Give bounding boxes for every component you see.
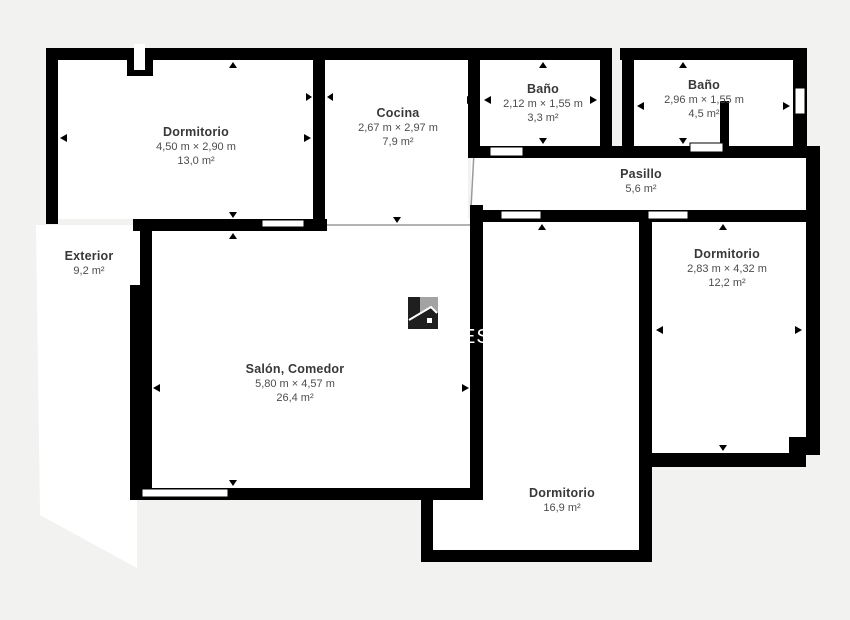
- room-floor-dormitorio-tl: [58, 60, 313, 219]
- wall-dorm-right-step: [789, 437, 806, 455]
- wall-bano2-left: [622, 48, 634, 158]
- wall-salon-right: [470, 205, 483, 500]
- wall-dorm-cocina: [313, 60, 325, 225]
- door-bano-2: [690, 143, 723, 152]
- wall-salon-left-upper: [140, 219, 152, 287]
- wall-left-outer: [46, 48, 58, 224]
- door-pasillo-dorm-right: [648, 211, 688, 219]
- room-floor-salon: [140, 219, 483, 500]
- wall-dorms-divider: [639, 210, 652, 562]
- watermark-logo: [408, 297, 438, 329]
- room-floor-bano-2: [634, 60, 793, 146]
- wall-right-outer: [806, 146, 820, 455]
- door-pasillo-dorm-bottom: [501, 211, 541, 219]
- wall-top-main: [46, 48, 612, 60]
- wall-dorm-bottom-left-ext: [421, 488, 433, 562]
- wall-cocina-bano1: [468, 60, 480, 158]
- wall-top-bano2: [620, 48, 807, 60]
- floor-plan-drawing: [0, 0, 850, 620]
- window-bano-2: [795, 88, 805, 114]
- room-floor-bano-1: [480, 60, 600, 146]
- room-floor-dormitorio-right: [652, 222, 806, 453]
- window-dorm-tl: [262, 220, 304, 227]
- wall-dorm-bottom-bottom: [421, 550, 652, 562]
- window-salon: [142, 489, 228, 497]
- wall-salon-left-lower: [130, 285, 152, 500]
- wall-bano1-right: [600, 48, 612, 158]
- room-floor-pasillo: [471, 158, 806, 210]
- floor-plan: ES Dormitorio 4,50 m × 2,90 m 13,0 m² Co…: [0, 0, 850, 620]
- wall-notch-slot: [134, 44, 145, 70]
- room-floor-exterior: [36, 225, 141, 568]
- room-floor-cocina: [325, 60, 468, 225]
- door-bano-1: [490, 147, 523, 156]
- wall-dorm-right-bottom: [652, 453, 806, 467]
- wall-bano2-partition: [720, 101, 729, 148]
